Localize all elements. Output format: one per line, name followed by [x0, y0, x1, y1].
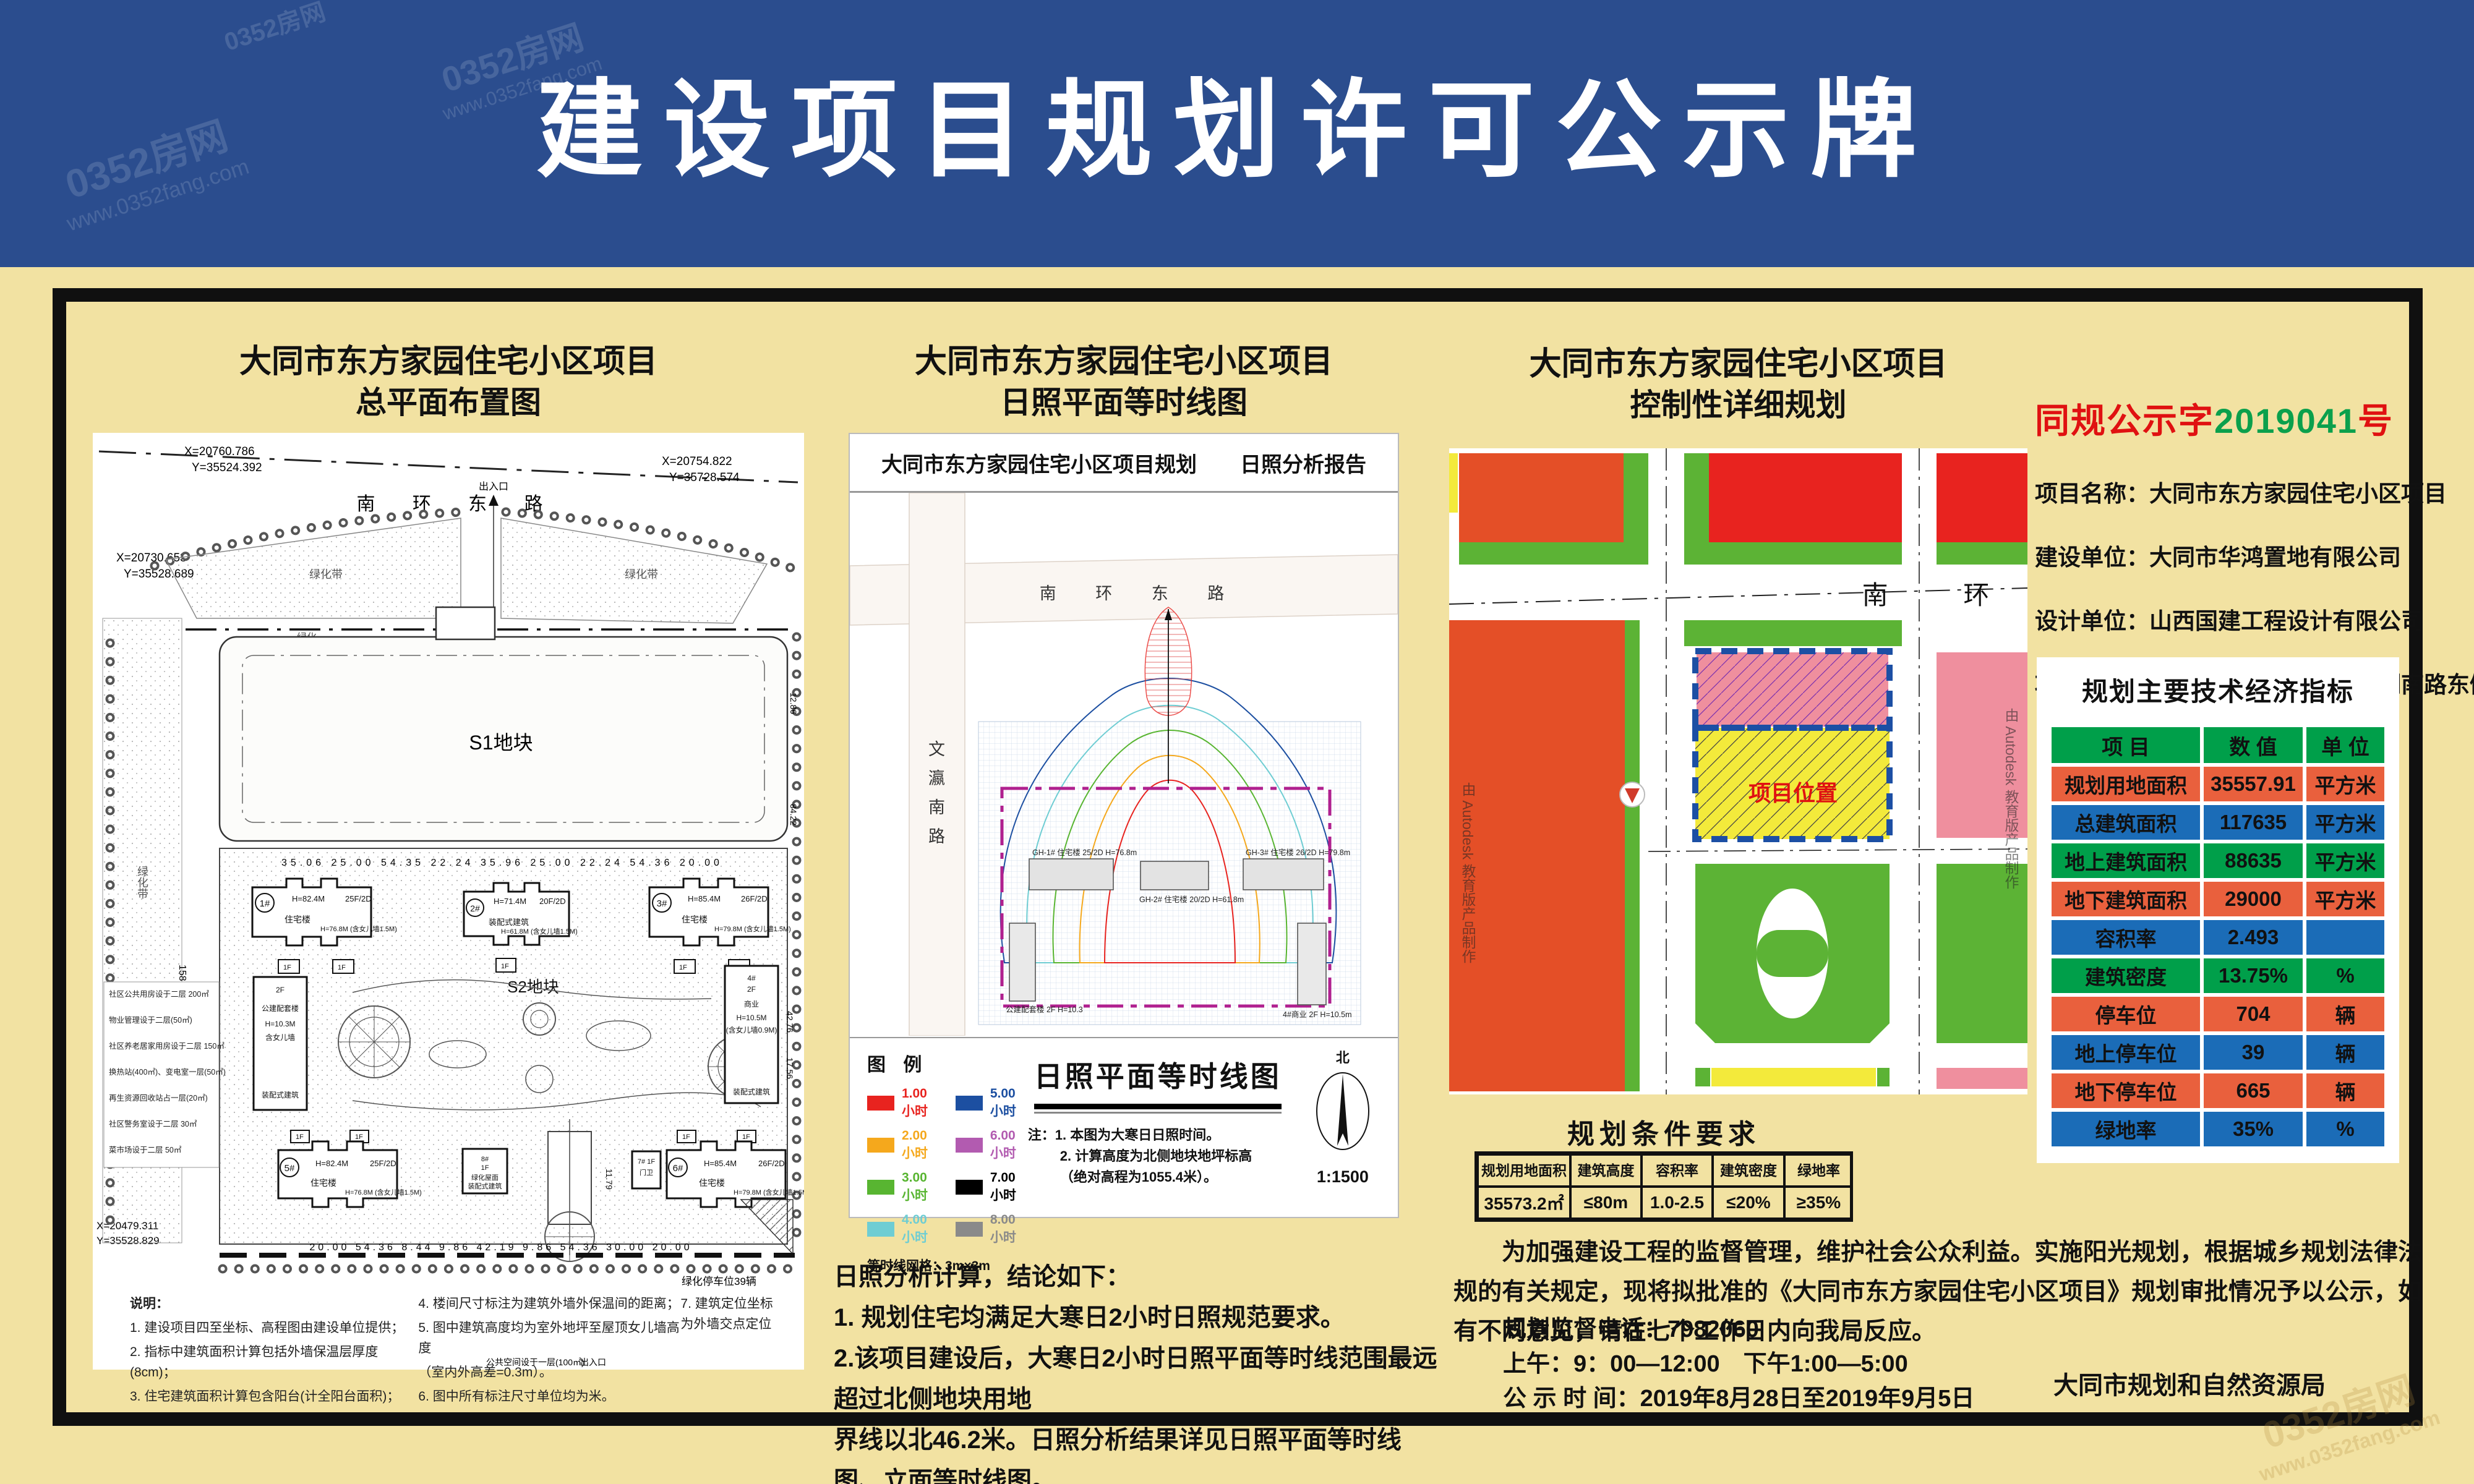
- indicator-row: 建筑密度13.75%%: [2052, 958, 2384, 993]
- conditions-value: 1.0-2.5: [1641, 1187, 1713, 1219]
- svg-text:H=10.3M: H=10.3M: [265, 1020, 295, 1028]
- legend-swatch: [956, 1180, 983, 1195]
- svg-text:社区公共用房设于二层 200㎡: 社区公共用房设于二层 200㎡: [109, 989, 209, 999]
- svg-text:住宅楼: 住宅楼: [699, 1178, 725, 1188]
- svg-text:1F: 1F: [481, 1164, 489, 1172]
- svg-text:绿化带: 绿化带: [136, 866, 148, 899]
- svg-text:2F: 2F: [747, 985, 756, 994]
- indicators-title: 规划主要技术经济指标: [2037, 657, 2399, 709]
- zoning-blocks-top: [1449, 453, 2027, 565]
- legend: 图 例 1.00 小时 2.00 小时 3.00 小时 4.00 小时 5.00…: [850, 1038, 1028, 1218]
- svg-text:(含女儿墙0.9M): (含女儿墙0.9M): [726, 1025, 777, 1034]
- project-site: 项目位置: [1684, 620, 1902, 839]
- svg-text:1F: 1F: [283, 964, 291, 971]
- svg-text:绿化屋面: 绿化屋面: [471, 1173, 499, 1182]
- road-label: 南 环: [1862, 581, 2024, 610]
- side-notes: 社区公共用房设于二层 200㎡ 物业管理设于二层(50㎡) 社区养老居家用房设于…: [104, 982, 226, 1167]
- legend-swatch: [956, 1096, 983, 1111]
- plan-notes: 说明： 1. 建设项目四至坐标、高程图由建设单位提供； 2. 指标中建筑面积计算…: [130, 1294, 785, 1410]
- svg-text:H=79.8M (含女儿墙1.5M): H=79.8M (含女儿墙1.5M): [734, 1188, 804, 1196]
- legend-swatch: [867, 1222, 894, 1237]
- conditions-header: 规划用地面积: [1478, 1154, 1570, 1187]
- svg-text:25F/2D: 25F/2D: [345, 894, 372, 903]
- legend-item: 5.00 小时: [956, 1086, 1028, 1120]
- sunshine-map: 南 环 东 路 文瀛南路: [850, 493, 1398, 1036]
- svg-text:1F: 1F: [355, 1133, 363, 1141]
- indicator-row: 地上停车位39辆: [2052, 1035, 2384, 1070]
- publicity-period: 公 示 时 间：2019年8月28日至2019年9月5日: [1503, 1379, 1974, 1413]
- indicator-row: 地上建筑面积88635平方米: [2052, 843, 2384, 878]
- svg-text:3#: 3#: [657, 898, 667, 909]
- svg-text:H=10.5M: H=10.5M: [736, 1013, 766, 1022]
- svg-text:再生资源回收站占一层(20㎡): 再生资源回收站占一层(20㎡): [109, 1093, 208, 1102]
- svg-text:Y=35524.392: Y=35524.392: [192, 461, 262, 474]
- green-parking-label: 绿化停车位39辆: [682, 1276, 756, 1287]
- indicators-table: 项 目数 值单 位 规划用地面积35557.91平方米 总建筑面积117635平…: [2052, 727, 2384, 1146]
- mid-section-title: 大同市东方家园住宅小区项目日照平面等时线图: [849, 341, 1399, 423]
- svg-text:6#: 6#: [673, 1163, 683, 1174]
- legend-swatch: [956, 1222, 983, 1237]
- svg-text:H=79.8M (含女儿墙1.5M): H=79.8M (含女儿墙1.5M): [714, 924, 791, 933]
- wheel-feature-icon: [338, 1006, 410, 1078]
- svg-text:1#: 1#: [260, 898, 270, 909]
- conditions-value: ≤20%: [1713, 1187, 1784, 1219]
- location-marker-icon: [1620, 782, 1645, 807]
- indicator-row: 规划用地面积35557.91平方米: [2052, 767, 2384, 801]
- svg-text:H=82.4M: H=82.4M: [292, 894, 325, 903]
- svg-text:H=85.4M: H=85.4M: [704, 1159, 737, 1168]
- svg-text:商业: 商业: [744, 999, 759, 1009]
- road-label: 南 环 东 路: [1040, 584, 1242, 603]
- svg-text:2F: 2F: [276, 986, 285, 994]
- sunshine-conclusions: 日照分析计算，结论如下： 1. 规划住宅均满足大寒日2小时日照规范要求。 2.该…: [834, 1256, 1440, 1484]
- conditions-table: 规划用地面积 建筑高度 容积率 建筑密度 绿地率 35573.2㎡ ≤80m 1…: [1475, 1151, 1853, 1222]
- indicator-row: 地下建筑面积29000平方米: [2052, 882, 2384, 916]
- svg-text:X=20754.822: X=20754.822: [662, 455, 732, 468]
- svg-text:装配式建筑: 装配式建筑: [262, 1090, 299, 1099]
- svg-text:由 Autodesk 教育版产品制作: 由 Autodesk 教育版产品制作: [2003, 708, 2019, 889]
- svg-text:H=71.4M: H=71.4M: [494, 897, 526, 906]
- svg-text:H=76.8M (含女儿墙1.5M): H=76.8M (含女儿墙1.5M): [320, 924, 397, 933]
- svg-text:由 Autodesk 教育版产品制作: 由 Autodesk 教育版产品制作: [1460, 782, 1476, 963]
- notice-board: 0352房网www.0352fang.com 0352房网www.0352fan…: [0, 0, 2474, 1484]
- permit-number: 同规公示字2019041号: [2035, 393, 2423, 443]
- legend-item: 4.00 小时: [867, 1213, 940, 1246]
- svg-text:H=82.4M: H=82.4M: [315, 1159, 348, 1168]
- public-building: 2F 公建配套楼 H=10.3M 含女儿墙 装配式建筑: [254, 977, 307, 1110]
- right-section-title: 大同市东方家园住宅小区项目控制性详细规划: [1449, 344, 2027, 425]
- indicator-row: 总建筑面积117635平方米: [2052, 805, 2384, 840]
- legend-swatch: [867, 1096, 894, 1111]
- svg-text:公建配套楼: 公建配套楼: [262, 1004, 299, 1013]
- legend-swatch: [956, 1138, 983, 1153]
- svg-text:GH-2# 住宅楼 20/2D H=61.8m: GH-2# 住宅楼 20/2D H=61.8m: [1139, 895, 1244, 904]
- svg-text:S2地块: S2地块: [507, 978, 559, 996]
- conditions-value: ≤80m: [1570, 1187, 1641, 1219]
- svg-text:菜市场设于二层 50㎡: 菜市场设于二层 50㎡: [109, 1145, 182, 1154]
- svg-text:20F/2D: 20F/2D: [539, 897, 566, 906]
- conditions-value: ≥35%: [1784, 1187, 1853, 1219]
- svg-text:社区警务室设于二层 30㎡: 社区警务室设于二层 30㎡: [109, 1119, 197, 1128]
- svg-text:26F/2D: 26F/2D: [741, 894, 768, 903]
- legend-item: 7.00 小时: [956, 1171, 1028, 1204]
- dim-label: 84.22: [789, 804, 798, 825]
- svg-text:S1地块: S1地块: [469, 731, 533, 754]
- info-row: 设计单位：山西国建工程设计有限公司: [2035, 602, 2431, 636]
- indicators-header-row: 项 目数 值单 位: [2052, 727, 2384, 763]
- svg-text:H=85.4M: H=85.4M: [688, 894, 721, 903]
- svg-text:8#: 8#: [481, 1156, 489, 1163]
- svg-text:1F: 1F: [501, 963, 509, 970]
- svg-text:住宅楼: 住宅楼: [285, 915, 310, 924]
- dim-row: 35.06 25.00 54.35 22.24 35.96 25.00 22.2…: [281, 858, 723, 868]
- svg-text:17.56: 17.56: [785, 1057, 795, 1079]
- indicator-row: 停车位704辆: [2052, 997, 2384, 1031]
- svg-text:装配式建筑: 装配式建筑: [468, 1182, 502, 1190]
- svg-text:25F/2D: 25F/2D: [370, 1159, 396, 1168]
- svg-text:1F: 1F: [682, 1133, 690, 1141]
- road-label: 文瀛南路: [926, 740, 945, 856]
- svg-text:换热站(400㎡)、变电室一层(50㎡): 换热站(400㎡)、变电室一层(50㎡): [109, 1067, 226, 1077]
- building-8: 8# 1F 绿化屋面 装配式建筑: [463, 1149, 507, 1193]
- legend-swatch: [867, 1138, 894, 1153]
- diagram-title-block: 日照平面等时线图 注：1. 本图为大寒日日照时间。 2. 计算高度为北侧地块地坪…: [1028, 1038, 1288, 1218]
- svg-text:4#商业 2F H=10.5m: 4#商业 2F H=10.5m: [1283, 1010, 1352, 1019]
- page-title: 建设项目规划许可公示牌: [0, 43, 2474, 198]
- site-plan-drawing: 南 环 东 路 出入口 X=20760.786 Y=35524.392 X=20…: [93, 433, 804, 1370]
- svg-text:2#: 2#: [470, 903, 480, 913]
- building-7: 7# 1F 门卫: [632, 1151, 661, 1188]
- left-section-title: 大同市东方家园住宅小区项目总平面布置图: [93, 341, 804, 423]
- svg-text:1F: 1F: [338, 964, 346, 971]
- report-title-bar: 大同市东方家园住宅小区项目规划日照分析报告: [850, 434, 1398, 493]
- dim-label: 12.86: [789, 693, 798, 714]
- project-location-label: 项目位置: [1748, 780, 1838, 806]
- site-plan-panel: 南 环 东 路 出入口 X=20760.786 Y=35524.392 X=20…: [93, 433, 804, 1370]
- indicator-row: 绿地率35%%: [2052, 1112, 2384, 1146]
- svg-text:7# 1F: 7# 1F: [638, 1158, 655, 1166]
- supervision-phone: 规划监督电话：7982060: [1503, 1310, 1759, 1344]
- conditions-header: 建筑高度: [1570, 1154, 1641, 1187]
- svg-text:GH-3# 住宅楼 26/2D H=79.8m: GH-3# 住宅楼 26/2D H=79.8m: [1246, 848, 1350, 857]
- svg-text:11.79: 11.79: [604, 1169, 614, 1190]
- legend-item: 6.00 小时: [956, 1128, 1028, 1162]
- zoning-map: 南 环 项: [1449, 448, 2027, 1094]
- zoning-map-panel: 南 环 项: [1449, 448, 2027, 1094]
- svg-text:绿化带: 绿化带: [625, 568, 658, 581]
- svg-text:42.76: 42.76: [785, 1011, 795, 1033]
- info-row: 项目名称：大同市东方家园住宅小区项目: [2035, 475, 2431, 508]
- svg-text:1F: 1F: [296, 1133, 304, 1141]
- agency-name: 大同市规划和自然资源局: [2053, 1365, 2326, 1401]
- svg-text:X=20760.786: X=20760.786: [184, 445, 255, 458]
- svg-text:H=76.8M (含女儿墙1.5M): H=76.8M (含女儿墙1.5M): [345, 1188, 422, 1196]
- svg-text:住宅楼: 住宅楼: [310, 1178, 336, 1188]
- svg-text:1F: 1F: [679, 964, 687, 971]
- svg-text:物业管理设于二层(50㎡): 物业管理设于二层(50㎡): [109, 1015, 192, 1025]
- svg-text:5#: 5#: [285, 1163, 295, 1174]
- svg-text:含女儿墙: 含女儿墙: [265, 1033, 295, 1042]
- legend-item: 8.00 小时: [956, 1213, 1028, 1246]
- dim-row: 20.00 54.36 8.44 9.86 42.19 9.86 54.36 3…: [309, 1242, 692, 1253]
- legend-item: 1.00 小时: [867, 1086, 940, 1120]
- info-row: 建设单位：大同市华鸿置地有限公司: [2035, 539, 2431, 572]
- svg-text:社区养老居家用房设于二层 150㎡: 社区养老居家用房设于二层 150㎡: [109, 1041, 225, 1051]
- legend-item: 2.00 小时: [867, 1128, 940, 1162]
- svg-text:公建配套楼 2F H=10.3: 公建配套楼 2F H=10.3: [1006, 1005, 1083, 1014]
- sunshine-panel: 大同市东方家园住宅小区项目规划日照分析报告 南 环 东 路 文瀛南路: [849, 433, 1399, 1218]
- conditions-header: 建筑密度: [1713, 1154, 1784, 1187]
- svg-text:4#: 4#: [747, 974, 756, 983]
- svg-text:1F: 1F: [742, 1133, 750, 1141]
- conditions-value: 35573.2㎡: [1478, 1187, 1570, 1219]
- conditions-title: 规划条件要求: [1475, 1112, 1853, 1151]
- svg-text:住宅楼: 住宅楼: [682, 915, 708, 924]
- svg-text:GH-1# 住宅楼 25/2D H=76.8m: GH-1# 住宅楼 25/2D H=76.8m: [1032, 848, 1137, 857]
- entrance-label: 出入口: [479, 481, 508, 492]
- svg-text:26F/2D: 26F/2D: [758, 1159, 785, 1168]
- conditions-header: 绿地率: [1784, 1154, 1853, 1187]
- s1-block: S1地块: [220, 607, 787, 841]
- zoning-blocks-left: [1449, 620, 1645, 1091]
- legend-strip: 图 例 1.00 小时 2.00 小时 3.00 小时 4.00 小时 5.00…: [850, 1037, 1398, 1218]
- office-hours: 上午：9：00—12:00 下午1:00—5:00: [1503, 1344, 1908, 1378]
- header-band: 0352房网www.0352fang.com 0352房网www.0352fan…: [0, 0, 2474, 267]
- indicator-row: 地下停车位665辆: [2052, 1073, 2384, 1108]
- conditions-header: 容积率: [1641, 1154, 1713, 1187]
- compass-block: 北 1:1500: [1288, 1038, 1398, 1218]
- legend-item: 3.00 小时: [867, 1171, 940, 1204]
- legend-swatch: [867, 1180, 894, 1195]
- svg-text:H=61.8M (含女儿墙1.5M): H=61.8M (含女儿墙1.5M): [501, 927, 578, 936]
- svg-text:门卫: 门卫: [640, 1168, 653, 1177]
- svg-text:装配式建筑: 装配式建筑: [733, 1087, 770, 1096]
- indicator-row: 容积率2.493: [2052, 920, 2384, 955]
- north-compass-icon: [1309, 1067, 1377, 1159]
- svg-text:绿化带: 绿化带: [309, 568, 343, 581]
- indicators-panel: 规划主要技术经济指标 项 目数 值单 位 规划用地面积35557.91平方米 总…: [2037, 657, 2399, 1163]
- svg-text:装配式建筑: 装配式建筑: [489, 918, 529, 927]
- svg-text:Y=35728.574: Y=35728.574: [669, 471, 740, 484]
